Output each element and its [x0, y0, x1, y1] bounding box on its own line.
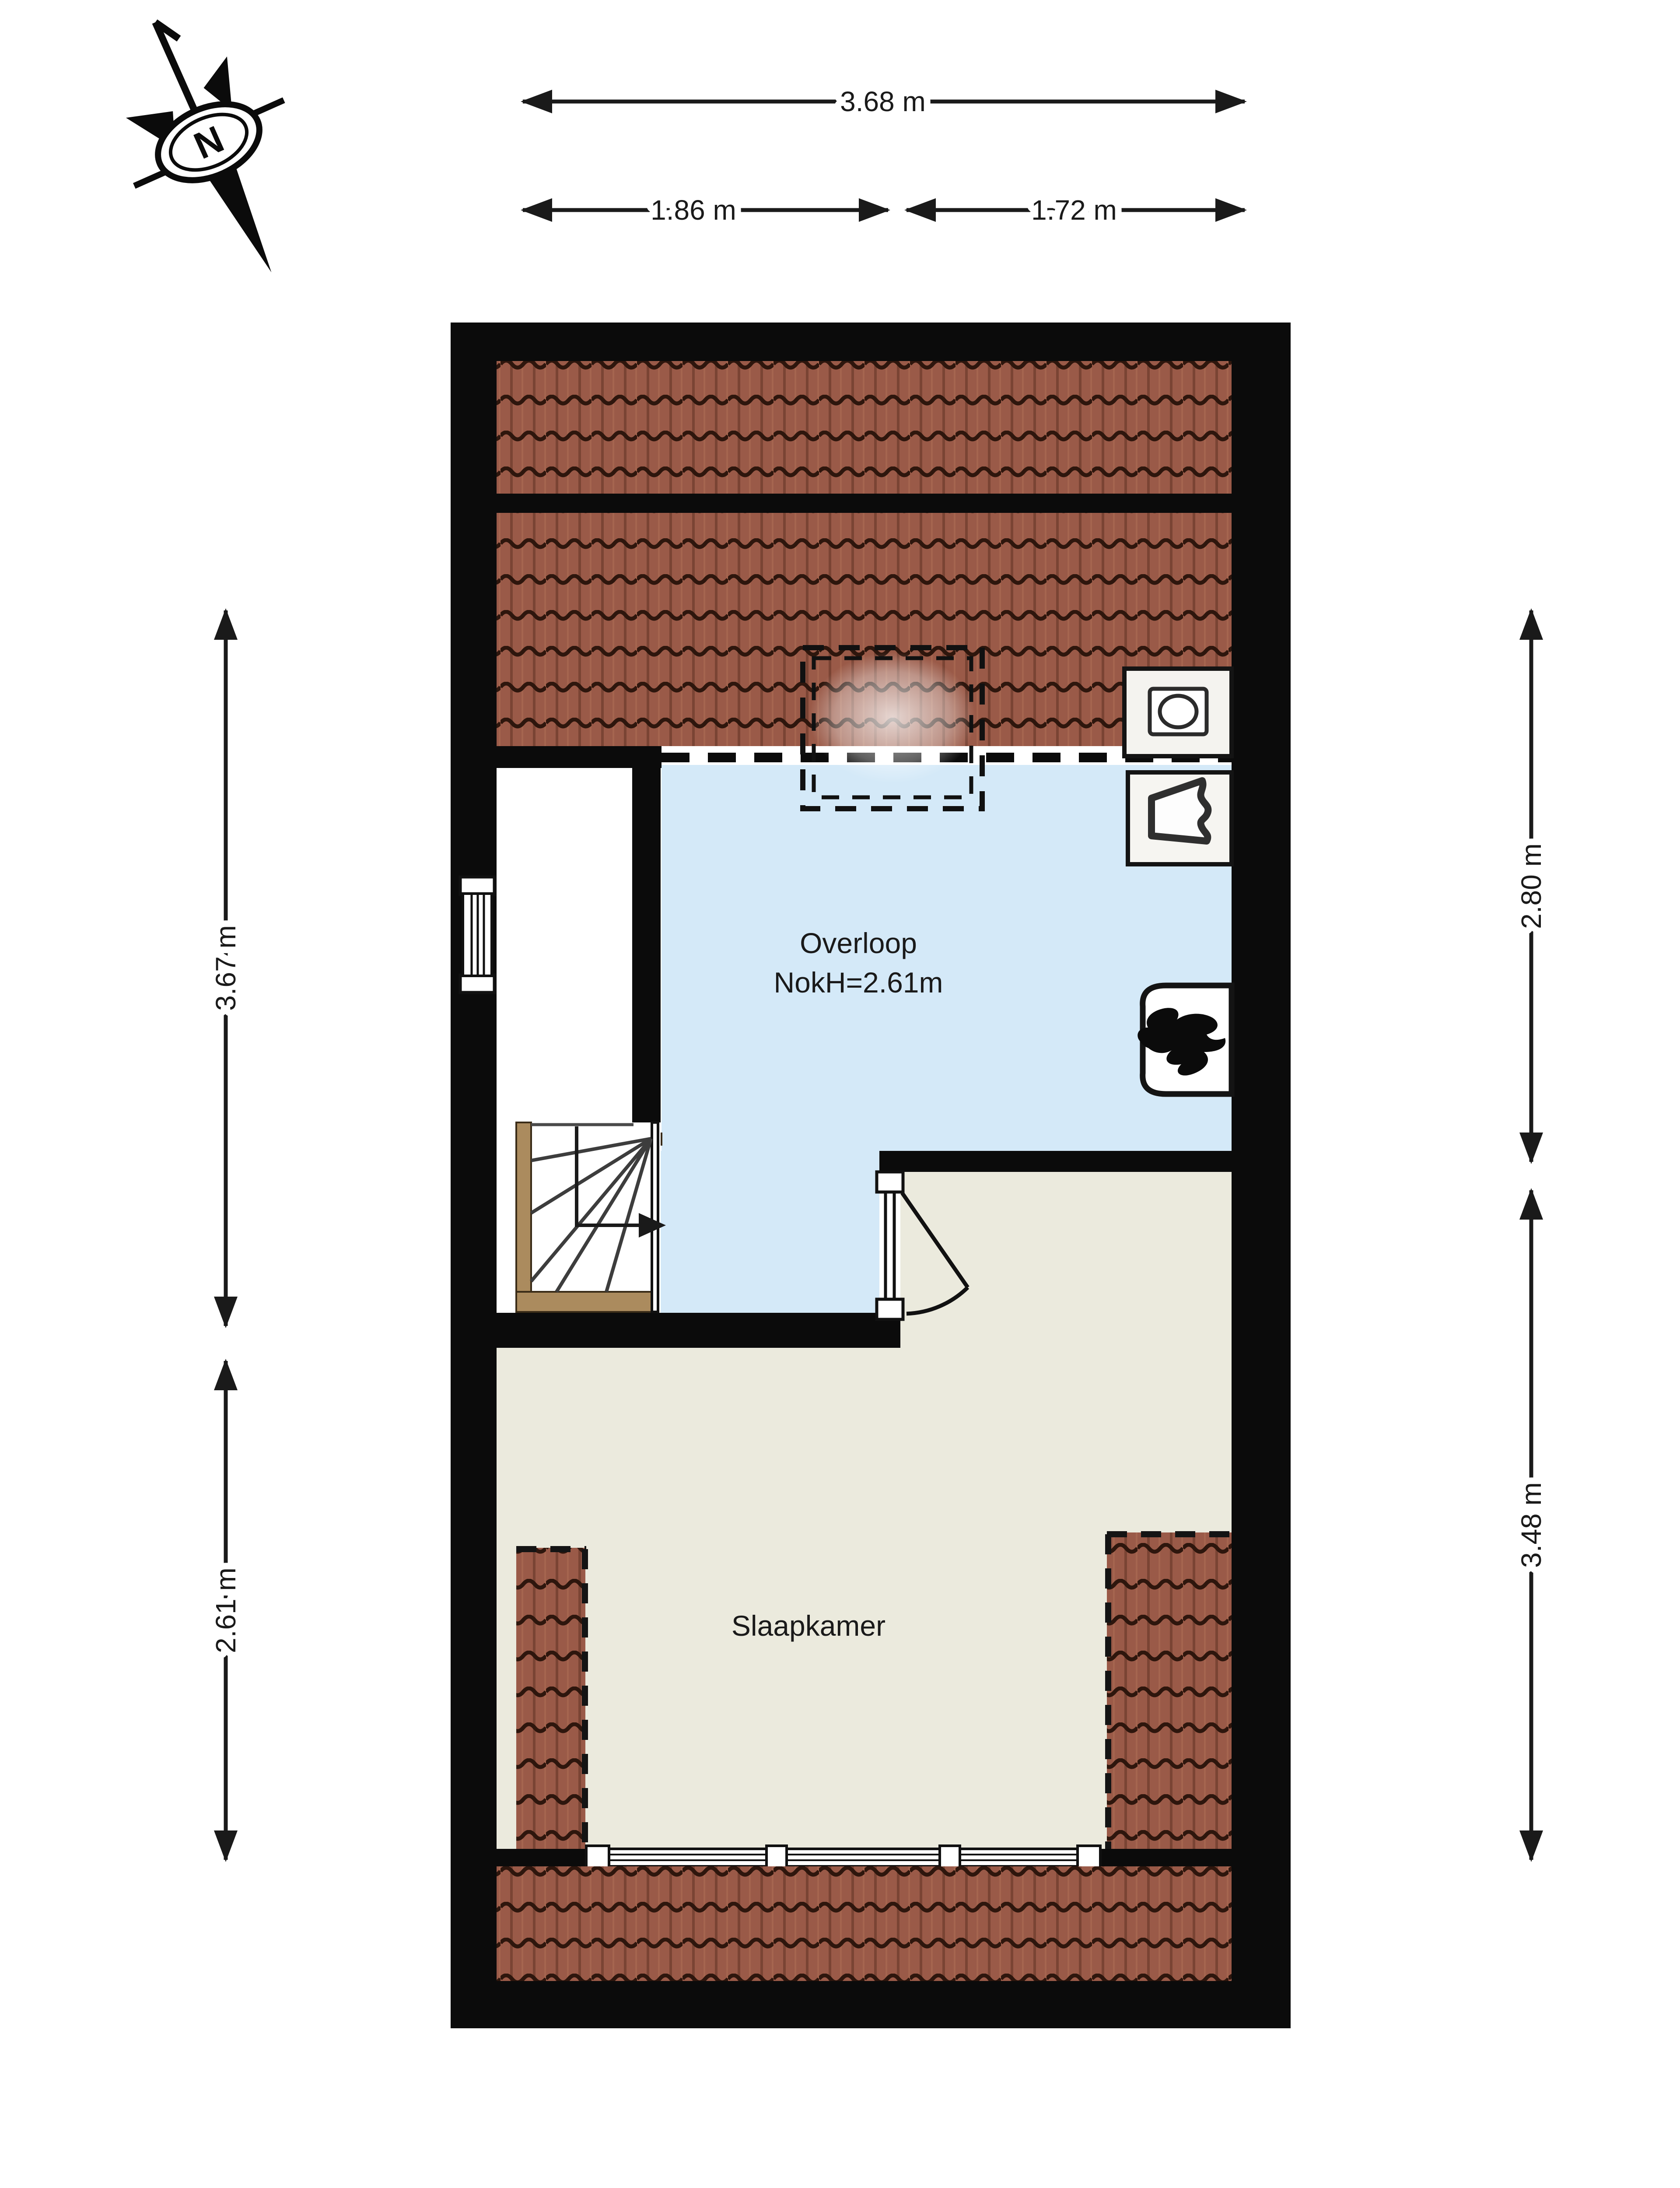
overloop-slaapkamer-wall [879, 1151, 1232, 1172]
roof-patch-left [516, 1548, 586, 1849]
ridge-wall [497, 494, 1232, 513]
dimension-right-upper: 2.80 m [1515, 608, 1547, 1164]
dim-right-upper-label: 2.80 m [1515, 843, 1547, 929]
dimension-left-lower: 2.61 m [210, 1359, 241, 1862]
dimension-top-right: 1.72 m [904, 194, 1247, 226]
overloop-landing [661, 1151, 879, 1314]
bottom-wall-stub-right [1100, 1849, 1232, 1866]
dim-top-total-label: 3.68 m [840, 86, 926, 117]
roof-band-top [497, 361, 1232, 494]
compass-rose-icon: N [77, 0, 346, 309]
stair-bottom-wall [451, 1313, 900, 1348]
ventilation-unit-icon [1128, 772, 1232, 864]
void-room-wall [632, 746, 661, 1133]
dimension-top-left: 1.86 m [521, 194, 890, 226]
stair-stringer-left [516, 1122, 531, 1312]
dim-left-lower-label: 2.61 m [210, 1567, 241, 1653]
floorplan-canvas: N 3.68 m 1.86 m 1.72 m 3.67 m 2.61 m [0, 0, 1680, 2188]
dimension-top-total: 3.68 m [521, 86, 1247, 117]
void-room [497, 768, 632, 1122]
washing-machine-icon [1124, 669, 1232, 756]
overloop-ridge-height: NokH=2.61m [773, 966, 943, 999]
roof-band-bottom [497, 1866, 1232, 1981]
stair-stringer-bottom [516, 1292, 655, 1312]
left-window-icon [460, 877, 494, 992]
dim-top-right-label: 1.72 m [1031, 194, 1117, 226]
bottom-window-band-icon [586, 1846, 1100, 1869]
boiler-icon [1137, 985, 1232, 1094]
slaapkamer-label: Slaapkamer [731, 1609, 885, 1642]
dim-left-upper-label: 3.67 m [210, 925, 241, 1011]
dimension-left-upper: 3.67 m [210, 608, 241, 1328]
roof-patch-right [1107, 1532, 1232, 1849]
bottom-wall-stub-left [497, 1849, 586, 1866]
dim-right-lower-label: 3.48 m [1515, 1482, 1547, 1568]
staircase [497, 1122, 666, 1313]
overloop-label: Overloop [800, 927, 917, 959]
floorplan: Overloop NokH=2.61m Slaapkamer [451, 323, 1291, 2028]
dimension-right-lower: 3.48 m [1515, 1188, 1547, 1862]
dim-top-left-label: 1.86 m [651, 194, 736, 226]
